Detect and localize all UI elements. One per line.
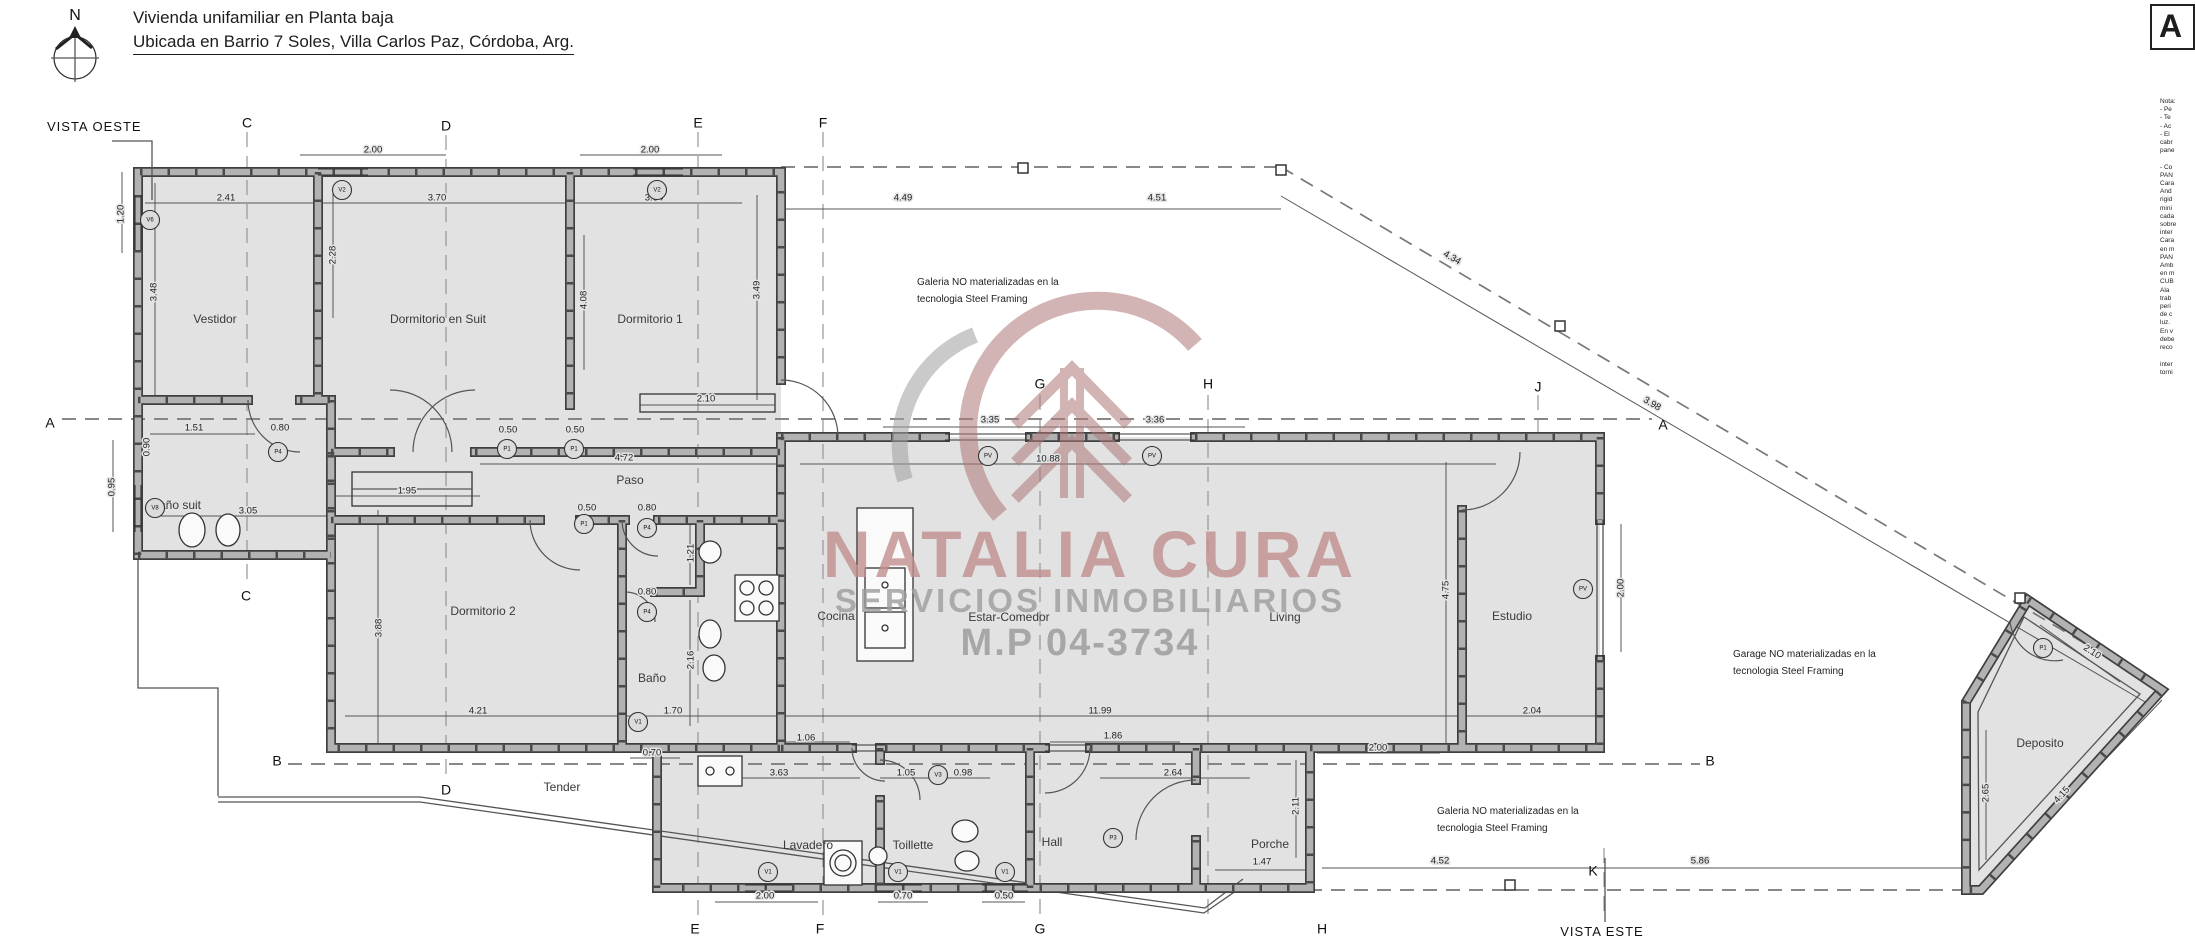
side-note-line: PAN xyxy=(2160,254,2195,262)
side-note-line: trab xyxy=(2160,295,2195,303)
room-label-ba-o: Baño xyxy=(638,671,666,685)
grid-letter-b: B xyxy=(272,753,281,769)
side-note-line: - Te xyxy=(2160,114,2195,122)
room-label-porche: Porche xyxy=(1251,837,1289,851)
dimension-label: 2.64 xyxy=(1164,768,1183,779)
room-label-estudio: Estudio xyxy=(1492,609,1532,623)
opening-marker-label: PV xyxy=(1148,454,1156,460)
stove xyxy=(735,575,779,621)
opening-marker-label: P1 xyxy=(580,522,588,528)
side-note-line: luz. xyxy=(2160,319,2195,327)
detail-reference-box: A xyxy=(2150,4,2195,50)
dimension-label: 0.80 xyxy=(638,587,657,598)
dimension-label: 3.36 xyxy=(1146,415,1165,426)
construction-note: tecnologia Steel Framing xyxy=(1437,823,1548,834)
north-compass: N xyxy=(51,7,99,82)
side-note-line: CUB xyxy=(2160,278,2195,286)
grid-letter-d: D xyxy=(441,782,451,798)
floor-plan-canvas: N VISTA OESTE VISTA ESTE NATALIA CURA SE… xyxy=(0,0,2195,950)
side-note-line: pane xyxy=(2160,147,2195,155)
side-note-line: inter xyxy=(2160,361,2195,369)
dimension-label: 0.50 xyxy=(566,425,585,436)
side-note-line: inter xyxy=(2160,229,2195,237)
dimension-label: 0.70 xyxy=(643,748,662,759)
dimension-label: 2.41 xyxy=(217,193,236,204)
side-note-line: cada xyxy=(2160,213,2195,221)
dimension-label: 2.04 xyxy=(1523,706,1542,717)
construction-note: Garage NO materializadas en la xyxy=(1733,649,1876,660)
floor-plan-page: { "header": { "north_letter": "N", "titl… xyxy=(0,0,2195,950)
grid-letter-c: C xyxy=(242,115,252,131)
grid-letter-b: B xyxy=(1705,753,1714,769)
watermark-name: NATALIA CURA xyxy=(823,517,1357,591)
side-note-line: - El xyxy=(2160,131,2195,139)
grid-letter-g: G xyxy=(1035,376,1046,392)
opening-marker-label: P4 xyxy=(643,526,651,532)
dimension-label: 1.51 xyxy=(185,423,204,434)
opening-marker-label: V8 xyxy=(151,506,159,512)
dimension-label: 1.86 xyxy=(1104,731,1123,742)
side-note-line: en m xyxy=(2160,246,2195,254)
room-label-vestidor: Vestidor xyxy=(193,312,236,326)
watermark-license: M.P 04-3734 xyxy=(961,622,1200,664)
side-note-line: rigid xyxy=(2160,196,2195,204)
dimension-label: 0.90 xyxy=(142,438,153,457)
side-note-line: Cara xyxy=(2160,180,2195,188)
construction-note: Galeria NO materializadas en la xyxy=(1437,806,1579,817)
dimension-label: 3.35 xyxy=(981,415,1000,426)
dimension-label: 0.80 xyxy=(271,423,290,434)
dimension-label: 2.00 xyxy=(1616,579,1627,598)
side-note-line: Ala xyxy=(2160,287,2195,295)
opening-marker-label: V1 xyxy=(1001,870,1009,876)
opening-marker-label: V6 xyxy=(146,218,154,224)
dimension-label: 0.50 xyxy=(499,425,518,436)
room-label-cocina: Cocina xyxy=(817,609,855,623)
opening-marker-label: P4 xyxy=(274,450,282,456)
room-label-dormitorio-1: Dormitorio 1 xyxy=(617,312,683,326)
dimension-label: 0.50 xyxy=(995,891,1014,902)
side-note-line: Nota: xyxy=(2160,98,2195,106)
dimension-label: 4.49 xyxy=(894,193,913,204)
opening-marker-label: V2 xyxy=(338,188,346,194)
grid-letter-a: A xyxy=(1658,417,1668,433)
dimension-label: 2.16 xyxy=(686,651,697,670)
construction-note: tecnologia Steel Framing xyxy=(917,294,1028,305)
dimension-label: 0.50 xyxy=(578,503,597,514)
side-note-line: - Co xyxy=(2160,164,2195,172)
opening-marker-label: PV xyxy=(984,454,992,460)
dimension-label: 3.70 xyxy=(428,193,447,204)
side-note-line: PAN xyxy=(2160,172,2195,180)
dimension-label: 4.08 xyxy=(579,291,590,310)
grid-letter-h: H xyxy=(1203,376,1213,392)
grid-letter-k: K xyxy=(1588,863,1598,879)
opening-marker-label: PV xyxy=(1579,587,1587,593)
dimension-label: 0.98 xyxy=(954,768,973,779)
dimension-label: 3.05 xyxy=(239,506,258,517)
side-note-line: And xyxy=(2160,188,2195,196)
dimension-label: 10.88 xyxy=(1036,454,1060,465)
dimension-label: 1.05 xyxy=(897,768,916,779)
grid-letter-a: A xyxy=(45,415,55,431)
room-label-dormitorio-en-suit: Dormitorio en Suit xyxy=(390,312,487,326)
dimension-label: 3.48 xyxy=(149,283,160,302)
room-label-lavadero: Lavadero xyxy=(783,838,833,852)
room-label-paso: Paso xyxy=(616,473,644,487)
side-note-line: Cara xyxy=(2160,237,2195,245)
dimension-label: 11.99 xyxy=(1088,706,1111,717)
side-note-line: mini xyxy=(2160,205,2195,213)
room-label-estar-comedor: Estar-Comedor xyxy=(968,610,1049,624)
dimension-label: 4.72 xyxy=(615,453,634,464)
dimension-label: 4.21 xyxy=(469,706,488,717)
laundry-sink xyxy=(698,756,742,786)
toilet xyxy=(179,513,205,547)
dimension-label: 2.11 xyxy=(1291,797,1302,815)
dimension-label: 2.28 xyxy=(328,246,339,265)
vista-oeste-label: VISTA OESTE xyxy=(47,119,142,134)
side-note-line: peri xyxy=(2160,303,2195,311)
grid-letter-f: F xyxy=(816,921,825,937)
dimension-label: 2.00 xyxy=(641,145,660,156)
opening-marker-label: V2 xyxy=(653,188,661,194)
grid-letter-h: H xyxy=(1317,921,1327,937)
detail-reference-letter: A xyxy=(2159,8,2182,44)
dimension-label: 3.63 xyxy=(770,768,789,779)
dimension-label: 3.88 xyxy=(374,619,385,638)
dimension-label: 0.95 xyxy=(107,478,118,497)
construction-note: tecnologia Steel Framing xyxy=(1733,666,1844,677)
side-note-line: en m xyxy=(2160,270,2195,278)
side-note-line: - Pe xyxy=(2160,106,2195,114)
side-note-line: torni xyxy=(2160,369,2195,377)
bidet xyxy=(216,514,240,546)
opening-marker-label: V1 xyxy=(764,870,772,876)
dimension-label: 2.65 xyxy=(1981,784,1992,803)
room-label-hall: Hall xyxy=(1042,835,1063,849)
side-note-line xyxy=(2160,352,2195,360)
room-label-deposito: Deposito xyxy=(2016,736,2064,750)
grid-letter-g: G xyxy=(1035,921,1046,937)
dimension-label: 1.21 xyxy=(686,544,697,563)
opening-marker-label: P1 xyxy=(503,447,511,453)
side-notes-column: Nota:- Pe- Te- Ac- Elcabrpane - CoPANCar… xyxy=(2160,98,2195,678)
side-note-line: de c xyxy=(2160,311,2195,319)
side-note-line: reco xyxy=(2160,344,2195,352)
room-label-tender: Tender xyxy=(544,780,581,794)
dimension-label: 2.00 xyxy=(364,145,383,156)
side-note-line: cabr xyxy=(2160,139,2195,147)
room-label-toillette: Toillette xyxy=(893,838,934,852)
side-note-line xyxy=(2160,155,2195,163)
construction-note: Galeria NO materializadas en la xyxy=(917,277,1059,288)
opening-marker-label: V3 xyxy=(934,773,942,779)
opening-marker-label: P1 xyxy=(570,447,578,453)
grid-letter-e: E xyxy=(693,115,702,131)
toillette-sink xyxy=(869,847,887,865)
bath-sink xyxy=(699,541,721,563)
dimension-label: 2.00 xyxy=(756,891,775,902)
dimension-label: 5.86 xyxy=(1691,856,1710,867)
opening-marker-label: P4 xyxy=(643,610,651,616)
dimension-label: 2.00 xyxy=(1369,743,1388,754)
dimension-label: 1.06 xyxy=(797,733,816,744)
dimension-label: 3.49 xyxy=(752,281,763,300)
dimension-label: 1.20 xyxy=(116,205,127,224)
opening-marker-label: V1 xyxy=(634,720,642,726)
opening-marker-label: V1 xyxy=(894,870,902,876)
vista-este-label: VISTA ESTE xyxy=(1560,924,1643,939)
grid-letter-c: C xyxy=(241,588,251,604)
side-note-line: En v xyxy=(2160,328,2195,336)
side-note-line: debe xyxy=(2160,336,2195,344)
dimension-label: 2.10 xyxy=(697,394,716,405)
north-letter: N xyxy=(69,7,81,24)
side-note-line: - Ac xyxy=(2160,123,2195,131)
dimension-label: 0.80 xyxy=(638,503,657,514)
grid-letter-j: J xyxy=(1535,379,1542,395)
dimension-label: 4.52 xyxy=(1431,856,1450,867)
dimension-label: 1.70 xyxy=(664,706,683,717)
grid-letter-f: F xyxy=(819,115,828,131)
dimension-label: 0.70 xyxy=(894,891,913,902)
dimension-label: 4.51 xyxy=(1148,193,1167,204)
dimension-label: 3.98 xyxy=(1641,395,1663,414)
dimension-label: 1.47 xyxy=(1253,857,1272,868)
dimension-label: 1.95 xyxy=(398,486,417,497)
dimension-label: 4.75 xyxy=(1441,581,1452,600)
opening-marker-label: P3 xyxy=(1109,836,1117,842)
grid-letter-d: D xyxy=(441,118,451,134)
room-label-dormitorio-2: Dormitorio 2 xyxy=(450,604,516,618)
side-note-line: sobre xyxy=(2160,221,2195,229)
room-label-living: Living xyxy=(1269,610,1300,624)
grid-letter-e: E xyxy=(690,921,699,937)
side-note-line: Amb xyxy=(2160,262,2195,270)
opening-marker-label: P1 xyxy=(2039,646,2047,652)
